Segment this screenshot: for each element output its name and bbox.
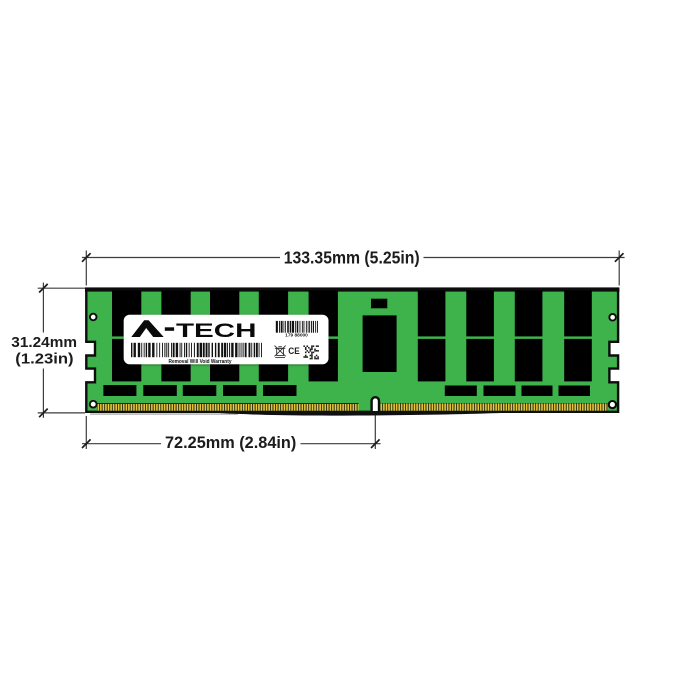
svg-text:CE: CE [288, 346, 300, 356]
svg-text:179 88000: 179 88000 [285, 333, 308, 339]
svg-text:31.24mm: 31.24mm [11, 335, 77, 351]
svg-text:72.25mm (2.84in): 72.25mm (2.84in) [165, 433, 296, 452]
svg-text:TECH: TECH [176, 321, 257, 342]
svg-text:(1.23in): (1.23in) [15, 351, 73, 367]
svg-text:Removal Will Void Warranty: Removal Will Void Warranty [169, 359, 233, 365]
svg-text:133.35mm (5.25in): 133.35mm (5.25in) [284, 248, 420, 268]
